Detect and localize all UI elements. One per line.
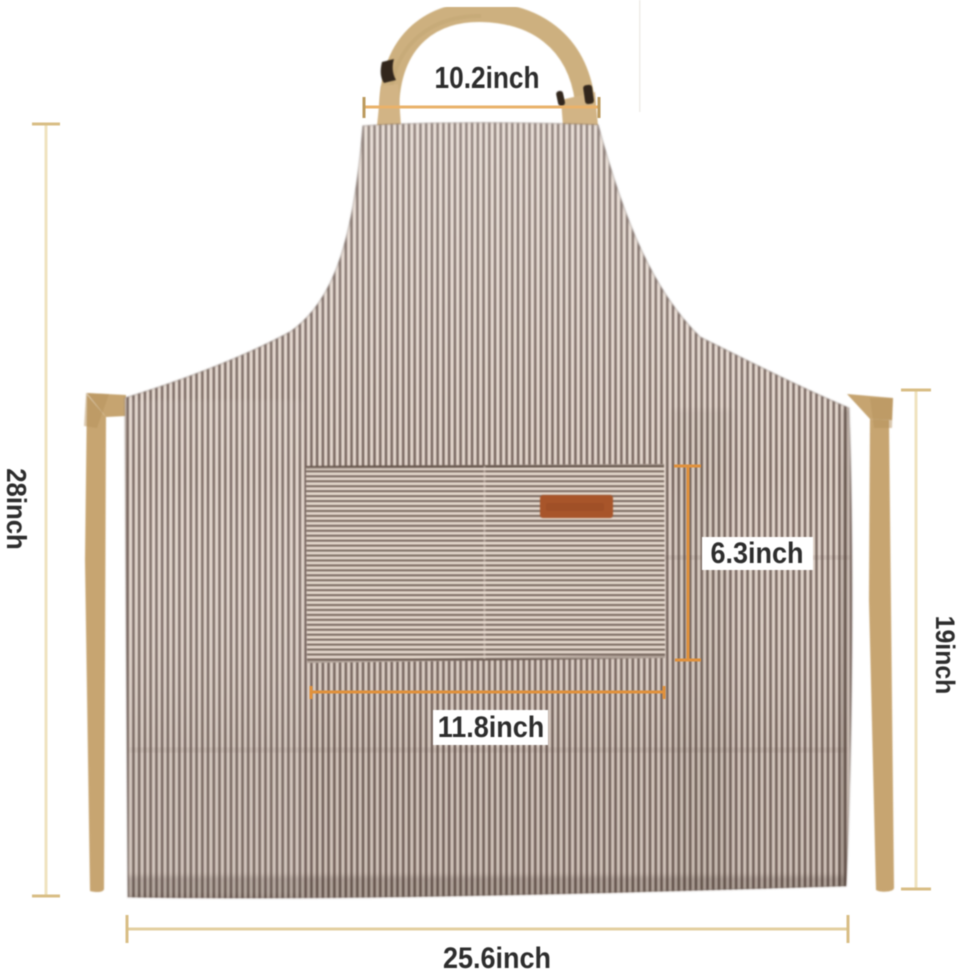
svg-text:10.2inch: 10.2inch xyxy=(435,61,540,95)
svg-text:28inch: 28inch xyxy=(1,468,32,550)
svg-text:6.3inch: 6.3inch xyxy=(711,537,804,571)
svg-text:25.6inch: 25.6inch xyxy=(443,942,551,976)
svg-text:11.8inch: 11.8inch xyxy=(438,711,544,745)
svg-text:19inch: 19inch xyxy=(930,616,959,695)
